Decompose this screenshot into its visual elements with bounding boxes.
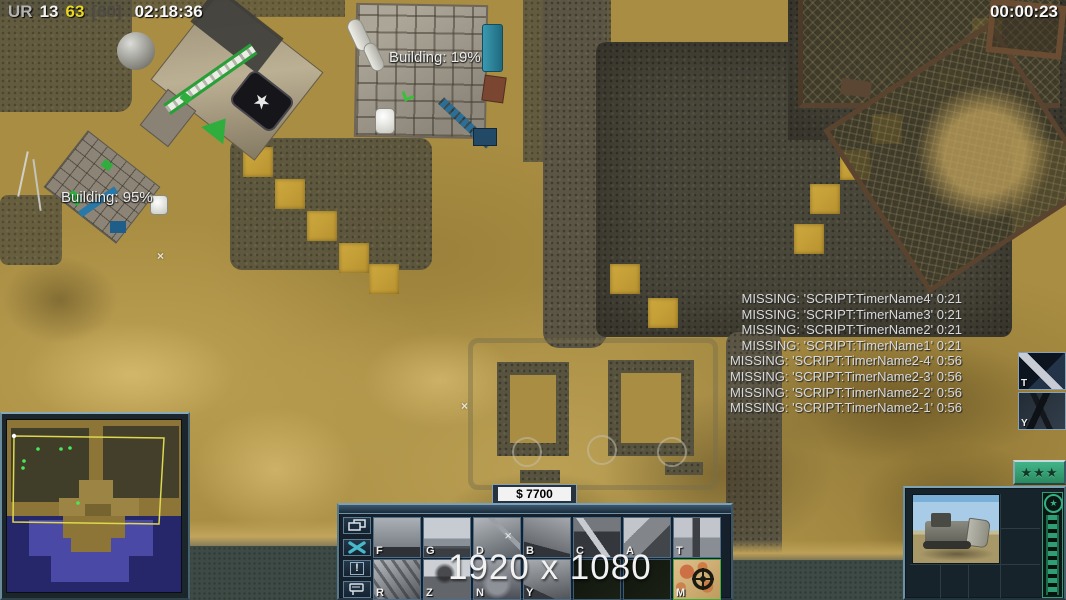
water-right <box>733 560 908 600</box>
beacon-icon <box>348 583 366 596</box>
hud-top-left: UR 13 63 [60] 02:18:36 <box>8 2 203 22</box>
scaffold-frame <box>44 130 161 243</box>
stat-secondary: 63 <box>65 2 84 22</box>
sand-tile <box>369 264 399 294</box>
unit-info-panel: ★ <box>903 486 1066 600</box>
panel-divider <box>1000 528 1040 529</box>
red-debris <box>481 75 506 104</box>
rank-stars: ★★★ <box>1021 465 1059 481</box>
panel-divider <box>1000 494 1001 564</box>
mission-timer: 02:18:36 <box>135 2 203 22</box>
resolution-overlay: 1920 x 1080 <box>448 548 652 588</box>
minimap-unit-dot <box>36 447 40 451</box>
dozer-cab <box>931 513 951 527</box>
sand-tile <box>648 298 678 328</box>
stat-primary: 13 <box>40 2 59 22</box>
game-viewport[interactable]: × × ★ <box>0 0 1066 600</box>
faction-label: UR <box>8 2 33 22</box>
ground-x-mark: × <box>157 249 164 263</box>
script-message: MISSING: 'SCRIPT:TimerName1' 0:21 <box>730 338 962 354</box>
power-button-satellite[interactable]: T <box>1018 352 1066 390</box>
build-button-m-mine[interactable]: M <box>673 559 721 600</box>
sand-tile <box>339 243 369 273</box>
minimap-unit-dot <box>22 459 26 463</box>
building-progress-label: Building: 95% <box>61 189 153 206</box>
base-blueprint <box>460 330 730 500</box>
formations-button[interactable] <box>343 517 371 534</box>
minimap-overlay <box>7 420 182 593</box>
minimap-white-dot <box>12 434 16 438</box>
script-message: MISSING: 'SCRIPT:TimerName4' 0:21 <box>730 291 962 307</box>
script-message: MISSING: 'SCRIPT:TimerName2-3' 0:56 <box>730 369 962 385</box>
ground-x-mark: × <box>461 399 468 413</box>
teal-container <box>482 24 503 72</box>
naval-mine-icon <box>690 566 716 592</box>
blueprint-bar <box>520 470 560 483</box>
sand-tile <box>810 184 840 214</box>
ground-shadow <box>919 547 995 561</box>
camera-frustum-outline <box>13 436 164 524</box>
script-message: MISSING: 'SCRIPT:TimerName2-2' 0:56 <box>730 385 962 401</box>
veterancy-column: ★ <box>1042 492 1063 598</box>
blueprint-circle <box>657 437 687 467</box>
unit-portrait-dozer[interactable] <box>912 494 1000 564</box>
countdown-timer: 00:00:23 <box>990 2 1058 22</box>
sand-tile <box>610 264 640 294</box>
star-icon: ★ <box>1049 499 1057 508</box>
script-message: MISSING: 'SCRIPT:TimerName2-4' 0:56 <box>730 353 962 369</box>
script-message: MISSING: 'SCRIPT:TimerName2' 0:21 <box>730 322 962 338</box>
stat-tertiary: [60] <box>91 2 121 22</box>
crane-base <box>110 221 126 233</box>
helipad-x-mark: × <box>504 528 512 543</box>
mast-pole <box>32 159 41 211</box>
panel-divider <box>940 565 941 598</box>
beacon-button[interactable] <box>343 581 371 598</box>
power-hotkey: Y <box>1021 418 1028 429</box>
script-message-list: MISSING: 'SCRIPT:TimerName4' 0:21 MISSIN… <box>730 291 962 416</box>
mast-pole <box>17 151 29 196</box>
money-value: $ 7700 <box>516 487 553 501</box>
minimap-unit-dot <box>59 447 63 451</box>
ruin-debris <box>840 78 872 98</box>
power-hotkey: T <box>1021 378 1027 389</box>
command-bar-header <box>339 505 731 514</box>
sand-tile <box>275 179 305 209</box>
exclamation-icon: ! <box>350 562 364 575</box>
sand-tile <box>794 224 824 254</box>
money-box: $ 7700 <box>498 487 571 501</box>
crane-base <box>473 128 497 146</box>
alert-button[interactable]: ! <box>343 560 371 577</box>
construction-site-19[interactable] <box>343 0 533 152</box>
script-message: MISSING: 'SCRIPT:TimerName3' 0:21 <box>730 307 962 323</box>
sand-tile <box>307 211 337 241</box>
repair-button[interactable] <box>343 539 371 556</box>
general-rank-badge: ★★★ <box>1013 460 1066 485</box>
panel-divider <box>968 565 969 598</box>
money-display: $ 7700 <box>492 484 577 504</box>
panel-divider <box>910 564 1040 565</box>
white-cylinder <box>375 108 395 134</box>
white-star-icon: ★ <box>247 86 277 117</box>
experience-ladder <box>1046 515 1059 595</box>
water-left <box>182 546 347 600</box>
script-message: MISSING: 'SCRIPT:TimerName2-1' 0:56 <box>730 400 962 416</box>
building-progress-label: Building: 19% <box>389 49 481 66</box>
build-button-t[interactable]: T <box>673 517 721 558</box>
minimap-unit-dot <box>76 501 80 505</box>
minimap-unit-dot <box>68 446 72 450</box>
blueprint-circle <box>512 437 542 467</box>
storage-sphere <box>117 32 155 70</box>
veterancy-star-emblem: ★ <box>1044 494 1063 513</box>
build-button-r[interactable]: R <box>373 559 421 600</box>
power-button-aircraft[interactable]: Y <box>1018 392 1066 430</box>
minimap[interactable] <box>6 419 182 593</box>
wrench-icon <box>348 541 366 554</box>
build-button-f[interactable]: F <box>373 517 421 558</box>
minimap-unit-dot <box>21 466 25 470</box>
panel-divider <box>1000 565 1001 598</box>
windows-icon <box>348 519 366 532</box>
blueprint-circle <box>587 435 617 465</box>
